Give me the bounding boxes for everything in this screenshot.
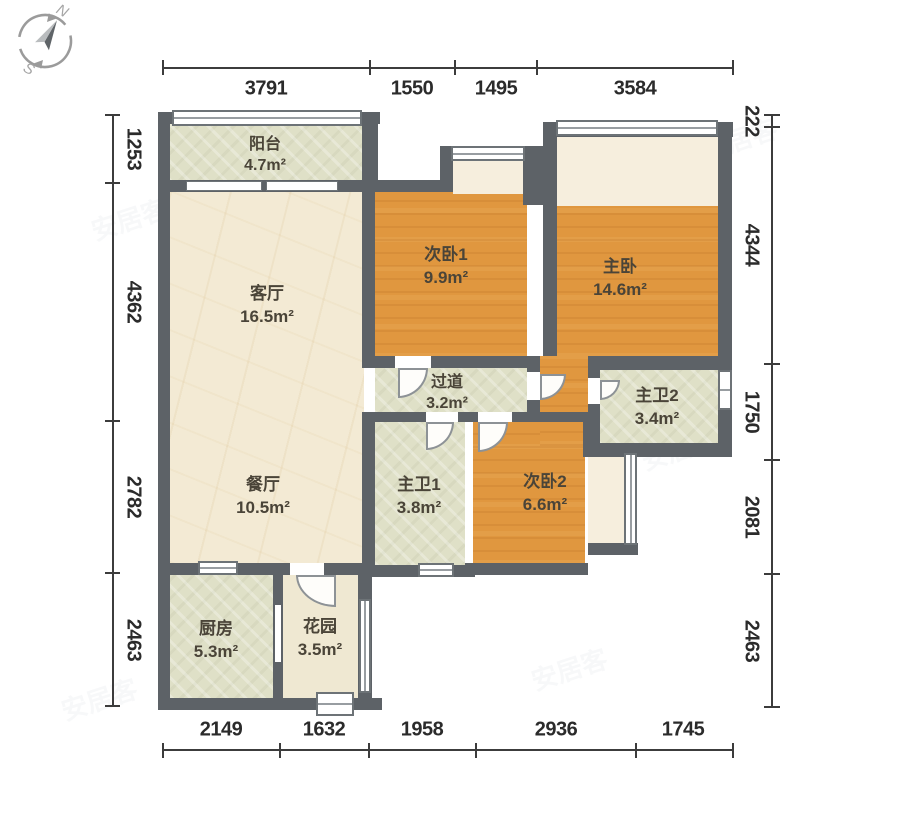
master-entry-nook [540,356,588,446]
room-label-bath2: 主卫23.4m² [635,384,679,430]
dim-label: 2081 [740,496,763,539]
room-label-bedroom2: 次卧26.6m² [523,470,567,516]
wall [588,356,730,370]
window [556,120,718,136]
watermark: 安居客 [56,669,142,728]
room-label-living: 客厅16.5m² [240,282,294,328]
wall [362,412,375,577]
dim-label: 3584 [614,78,657,101]
wall [588,443,730,457]
door-opening [527,372,540,400]
window [316,692,354,716]
door-opening [588,378,600,404]
dim-label: 1253 [122,128,145,171]
door-opening [275,605,281,662]
dim-label: 2463 [740,620,763,663]
watermark: 安居客 [526,639,612,698]
dim-label: 4362 [122,281,145,324]
dim-label: 2936 [535,719,578,742]
compass-icon: N S [6,2,84,80]
wall [543,122,557,356]
room-label-bedroom1: 次卧19.9m² [424,243,468,289]
wall [523,146,543,205]
dim-label: 2463 [122,619,145,662]
window [172,110,362,126]
dim-label: 1750 [740,391,763,434]
bedroom1-bay [453,160,523,194]
dim-label: 1550 [391,78,434,101]
master-bay [557,136,718,206]
window [359,599,371,693]
window [451,146,525,161]
dim-label: 1632 [303,719,346,742]
window [418,563,454,577]
dim-label: 4344 [740,224,763,267]
door-opening [478,412,512,422]
room-label-kitchen: 厨房5.3m² [194,617,238,663]
room-label-master: 主卧14.6m² [593,255,647,301]
wall [362,356,540,368]
compass-south-label: S [20,59,37,79]
room-label-bath1: 主卫13.8m² [397,473,441,519]
wall [583,422,588,457]
wall [158,563,362,575]
wall [362,180,375,368]
door-opening [290,563,324,575]
window [718,370,732,410]
bedroom2-bay [588,455,625,545]
floor-plan: 安居客 安居客 安居客 安居客 安居客 安居客 安居客 N S [0,0,904,819]
dim-label: 1495 [475,78,518,101]
room-label-balcony: 阳台4.7m² [244,134,286,176]
dim-label: 222 [740,105,763,137]
door-opening [395,356,431,368]
dim-label: 1958 [401,719,444,742]
wall [465,563,588,575]
wall [158,112,170,710]
window [198,561,238,575]
dim-label: 1745 [662,719,705,742]
sliding-door [266,181,338,191]
room-label-garden: 花园3.5m² [298,615,342,661]
room-label-hallway: 过道3.2m² [426,372,468,414]
dim-label: 2782 [122,476,145,519]
sliding-door [186,181,262,191]
room-label-dining: 餐厅10.5m² [236,473,290,519]
window [624,453,637,545]
dim-label: 3791 [245,78,288,101]
wall [588,356,600,457]
dim-label: 2149 [200,719,243,742]
